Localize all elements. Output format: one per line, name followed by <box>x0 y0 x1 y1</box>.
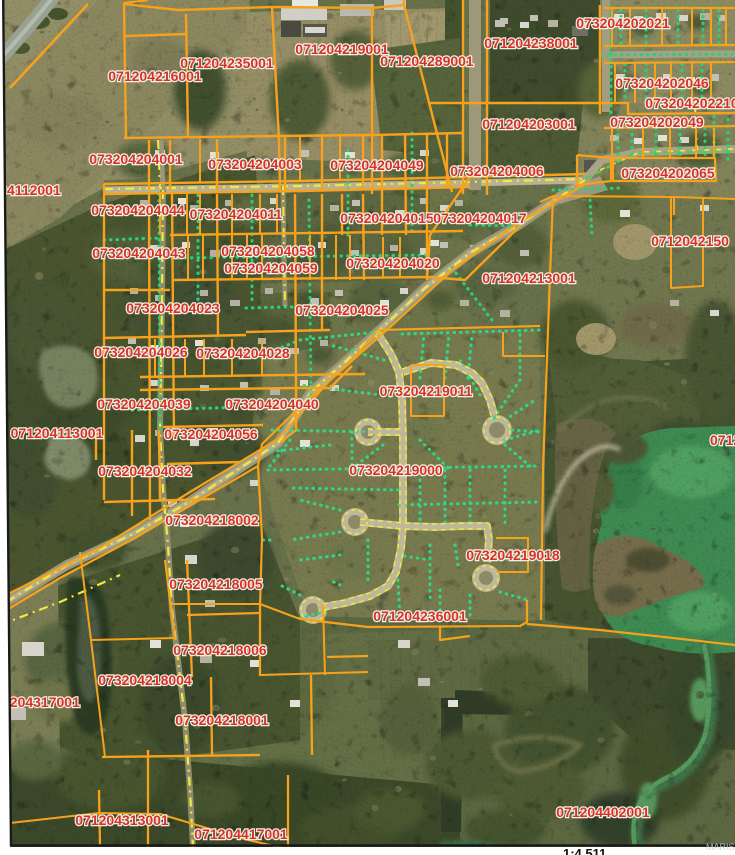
svg-text:071204213001: 071204213001 <box>482 270 576 286</box>
svg-text:073204204011: 073204204011 <box>190 206 283 222</box>
svg-text:073204202046: 073204202046 <box>615 75 709 91</box>
svg-text:071204: 071204 <box>710 432 735 448</box>
svg-text:1:4,511: 1:4,511 <box>563 846 606 855</box>
svg-text:04112001: 04112001 <box>0 182 61 198</box>
svg-text:071204203001: 071204203001 <box>482 116 576 132</box>
svg-text:073204218001: 073204218001 <box>175 712 269 728</box>
svg-text:073204218002: 073204218002 <box>165 512 259 528</box>
svg-text:073204204006: 073204204006 <box>450 163 544 179</box>
svg-text:073204218004: 073204218004 <box>98 672 192 688</box>
svg-text:073204218006: 073204218006 <box>173 642 267 658</box>
svg-text:073204204032: 073204204032 <box>98 463 192 479</box>
svg-text:1204317001: 1204317001 <box>2 694 80 710</box>
svg-text:071204417001: 071204417001 <box>194 826 288 842</box>
svg-text:073204204044: 073204204044 <box>91 202 185 218</box>
svg-text:073204202210: 073204202210 <box>645 95 735 111</box>
svg-text:073204204020: 073204204020 <box>346 255 440 271</box>
svg-text:073204202065: 073204202065 <box>621 165 715 181</box>
svg-text:073204204059: 073204204059 <box>224 260 318 276</box>
svg-text:073204204039: 073204204039 <box>97 396 191 412</box>
svg-text:073204204058: 073204204058 <box>221 243 315 259</box>
svg-text:073204204023: 073204204023 <box>126 300 220 316</box>
svg-text:071204238001: 071204238001 <box>484 35 578 51</box>
svg-text:071204289001: 071204289001 <box>380 53 474 69</box>
svg-text:073204204025: 073204204025 <box>295 302 389 318</box>
svg-text:MARIS: MARIS <box>706 842 735 852</box>
svg-text:071204402001: 071204402001 <box>556 804 650 820</box>
svg-text:073204219011: 073204219011 <box>380 383 473 399</box>
svg-text:073204204028: 073204204028 <box>196 345 290 361</box>
svg-text:073204204017: 073204204017 <box>433 210 527 226</box>
svg-text:073204204056: 073204204056 <box>164 426 258 442</box>
svg-text:071204236001: 071204236001 <box>373 608 467 624</box>
svg-text:071204235001: 071204235001 <box>180 55 274 71</box>
svg-text:073204219018: 073204219018 <box>466 547 560 563</box>
svg-text:073204204003: 073204204003 <box>208 156 302 172</box>
svg-text:073204204015: 073204204015 <box>340 210 434 226</box>
svg-text:073204202021: 073204202021 <box>576 15 670 31</box>
svg-text:0712042150: 0712042150 <box>651 233 729 249</box>
svg-text:073204204040: 073204204040 <box>225 396 319 412</box>
svg-text:071204313001: 071204313001 <box>75 812 169 828</box>
svg-text:073204204026: 073204204026 <box>94 344 188 360</box>
svg-text:073204204001: 073204204001 <box>89 151 183 167</box>
svg-text:073204202049: 073204202049 <box>610 114 704 130</box>
svg-text:073204219000: 073204219000 <box>349 462 443 478</box>
svg-text:071204113001: 071204113001 <box>11 425 104 441</box>
svg-text:073204204043: 073204204043 <box>92 245 186 261</box>
svg-text:073204204049: 073204204049 <box>330 157 424 173</box>
svg-text:073204218005: 073204218005 <box>169 576 263 592</box>
svg-text:071204219001: 071204219001 <box>295 41 389 57</box>
